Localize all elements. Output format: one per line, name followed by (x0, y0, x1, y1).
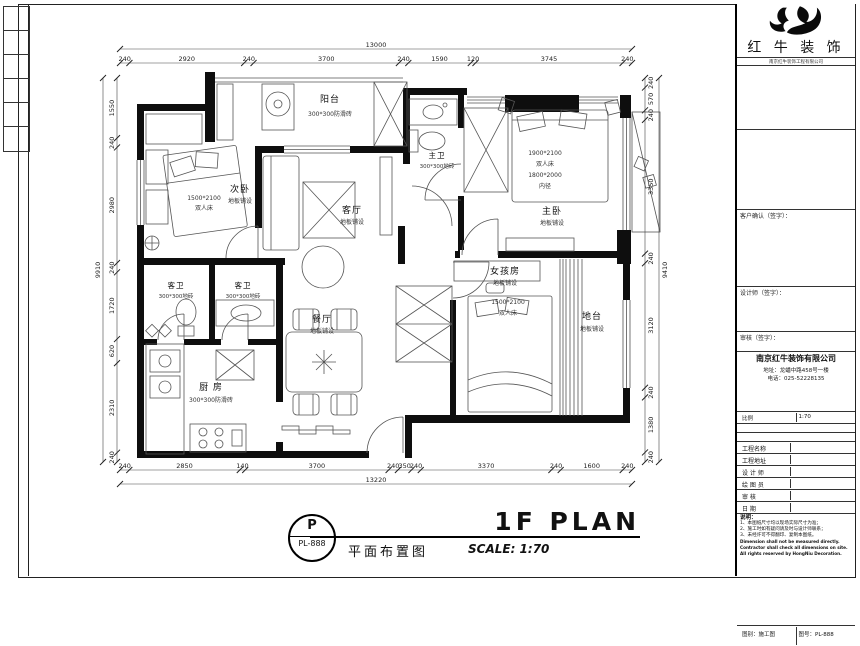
svg-text:3700: 3700 (318, 55, 335, 63)
bed-inner-master: 1800*2000 (528, 172, 562, 179)
field-row-0: 工程名称 (737, 442, 855, 454)
room-label-platform: 地台 (582, 310, 602, 322)
svg-text:240: 240 (550, 462, 562, 470)
bed-size-second: 1500*2100 (187, 195, 221, 202)
svg-text:3120: 3120 (647, 317, 655, 334)
bull-logo-icon (761, 5, 831, 35)
room-note-living: 地板铺设 (340, 218, 364, 226)
svg-text:2920: 2920 (179, 55, 196, 63)
room-label-guest-bath-1: 客卫 (168, 280, 185, 290)
svg-text:240: 240 (243, 55, 255, 63)
svg-text:1550: 1550 (108, 100, 116, 117)
room-note-kitchen: 300*300防滑砖 (189, 396, 233, 404)
room-note-second-bedroom: 地板铺设 (228, 197, 252, 205)
svg-text:240: 240 (647, 109, 655, 121)
room-note-balcony: 300*300防滑砖 (308, 110, 352, 118)
sheet-badge: P PL-888 (288, 514, 336, 562)
sliding-door (282, 426, 350, 434)
svg-text:240: 240 (647, 252, 655, 264)
svg-text:3370: 3370 (478, 462, 495, 470)
sheet-scale: SCALE: 1:70 (468, 542, 549, 556)
room-label-second-bedroom: 次卧 (230, 183, 250, 195)
room-note-girl-room: 地板铺设 (493, 279, 517, 287)
svg-text:1380: 1380 (647, 417, 655, 434)
title-block-box-1 (737, 66, 855, 130)
field-row-2: 设 计 师 (737, 466, 855, 478)
guest-bath-1-fixtures (146, 299, 196, 337)
room-label-living: 客厅 (342, 204, 362, 216)
svg-text:240: 240 (647, 386, 655, 398)
svg-text:3745: 3745 (541, 55, 558, 63)
bed-type-girl: 双人床 (499, 309, 517, 317)
room-note-dining: 地板铺设 (310, 327, 334, 335)
svg-text:570: 570 (647, 93, 655, 105)
brand-logo: 红 牛 装 饰 (737, 4, 855, 58)
bed-type-master: 双人床 (536, 160, 554, 168)
room-label-balcony: 阳台 (320, 93, 340, 105)
svg-text:3700: 3700 (309, 462, 326, 470)
svg-text:240: 240 (647, 77, 655, 89)
bed-type-second: 双人床 (195, 204, 213, 212)
floor-plan-canvas: 阳台 300*300防滑砖 1500*2100 双人床 次卧 地板铺设 客厅 地… (0, 0, 860, 580)
guest-bath-2-fixtures (216, 300, 274, 326)
room-label-girl-room: 女孩房 (490, 265, 520, 277)
approve-sign-box: 审核（签字）： (737, 332, 855, 352)
designer-sign-box: 设计师（签字）： (737, 287, 855, 332)
svg-text:3350: 3350 (647, 178, 655, 195)
svg-text:240: 240 (647, 451, 655, 463)
svg-text:2980: 2980 (108, 197, 116, 214)
room-note-master-bath: 300*300地砖 (420, 162, 455, 170)
svg-text:120: 120 (467, 55, 479, 63)
room-note-platform: 地板铺设 (580, 325, 604, 333)
title-block: 红 牛 装 饰 南京红牛装饰工程有限公司 客户确认（签字）： 设计师（签字）： … (735, 4, 855, 576)
room-note-guest-bath-1: 300*300地砖 (159, 292, 194, 300)
room-label-master-bedroom: 主卧 (542, 205, 562, 217)
svg-text:240: 240 (108, 451, 116, 463)
bed-size-master: 1900*2100 (528, 150, 562, 157)
company-info: 南京红牛装饰有限公司 地址：龙蟠中路458号一楼 电话：025-52228135 (737, 352, 855, 412)
svg-text:1600: 1600 (583, 462, 600, 470)
scale-row: 比例 1:70 (737, 412, 855, 424)
empty-row-2 (737, 433, 855, 442)
bed-size-girl: 1500*2100 (491, 299, 525, 306)
svg-text:140: 140 (236, 462, 248, 470)
svg-text:620: 620 (108, 345, 116, 357)
notes-block: 说明： 1、本图纸尺寸均以现场实际尺寸为准； 2、施工时如有疑问请及时与设计师联… (737, 514, 855, 626)
svg-text:240: 240 (397, 55, 409, 63)
empty-row-1 (737, 424, 855, 433)
room-note-master-bedroom: 地板铺设 (540, 219, 564, 227)
bay-window-seat (632, 112, 660, 232)
dimension-top: 240292024037002401590120374524013000 (117, 41, 635, 66)
brand-tagline: 南京红牛装饰工程有限公司 (737, 58, 855, 66)
svg-text:240: 240 (119, 55, 131, 63)
company-name: 南京红牛装饰有限公司 (740, 353, 852, 364)
field-row-5: 日 期 (737, 502, 855, 514)
brand-name: 红 牛 装 饰 (740, 37, 852, 57)
svg-text:240: 240 (410, 462, 422, 470)
svg-text:240: 240 (108, 261, 116, 273)
second-bedroom-furniture (145, 114, 247, 250)
company-address: 地址：龙蟠中路458号一楼 (740, 367, 852, 375)
room-label-dining: 餐厅 (312, 313, 332, 325)
bed-inner2-master: 内径 (539, 182, 551, 190)
svg-text:240: 240 (621, 55, 633, 63)
field-row-1: 工程地址 (737, 454, 855, 466)
hall-wardrobe (396, 286, 452, 362)
room-note-guest-bath-2: 300*300地砖 (226, 292, 261, 300)
company-phone: 电话：025-52228135 (740, 375, 852, 383)
platform-floor (560, 259, 582, 416)
svg-text:9910: 9910 (94, 262, 102, 279)
room-label-kitchen: 厨 房 (199, 381, 223, 393)
customer-sign-box: 客户确认（签字）： (737, 210, 855, 287)
dimension-right: 2405702403350240312024013802409410 (642, 75, 669, 465)
field-row-3: 绘 图 员 (737, 478, 855, 490)
drawing-sheet: 阳台 300*300防滑砖 1500*2100 双人床 次卧 地板铺设 客厅 地… (0, 0, 860, 580)
dimension-left: 15502402980240172062023102409910 (94, 75, 120, 465)
title-block-box-2 (737, 130, 855, 210)
sheet-title-cn: 平面布置图 (348, 541, 428, 560)
title-underline (310, 536, 640, 538)
title-block-footer: 图别：施工图 图号：PL-888 (737, 626, 855, 646)
svg-text:1720: 1720 (108, 297, 116, 314)
svg-text:13220: 13220 (366, 476, 387, 484)
svg-text:240: 240 (108, 137, 116, 149)
room-label-guest-bath-2: 客卫 (235, 280, 252, 290)
svg-text:2310: 2310 (108, 400, 116, 417)
master-bath-fixtures (409, 99, 457, 226)
svg-text:240: 240 (118, 462, 130, 470)
svg-text:9410: 9410 (661, 262, 669, 279)
room-label-master-bath: 主卫 (429, 150, 446, 160)
sheet-title-en: 1F PLAN (390, 507, 640, 536)
svg-text:1590: 1590 (431, 55, 448, 63)
field-row-4: 审 核 (737, 490, 855, 502)
svg-text:240: 240 (621, 462, 633, 470)
svg-text:2850: 2850 (176, 462, 193, 470)
sheet-badge-letter: P (290, 516, 334, 536)
svg-text:13000: 13000 (366, 41, 387, 49)
dimension-bottom: 2402850140370024035024033702401600240132… (117, 462, 635, 487)
